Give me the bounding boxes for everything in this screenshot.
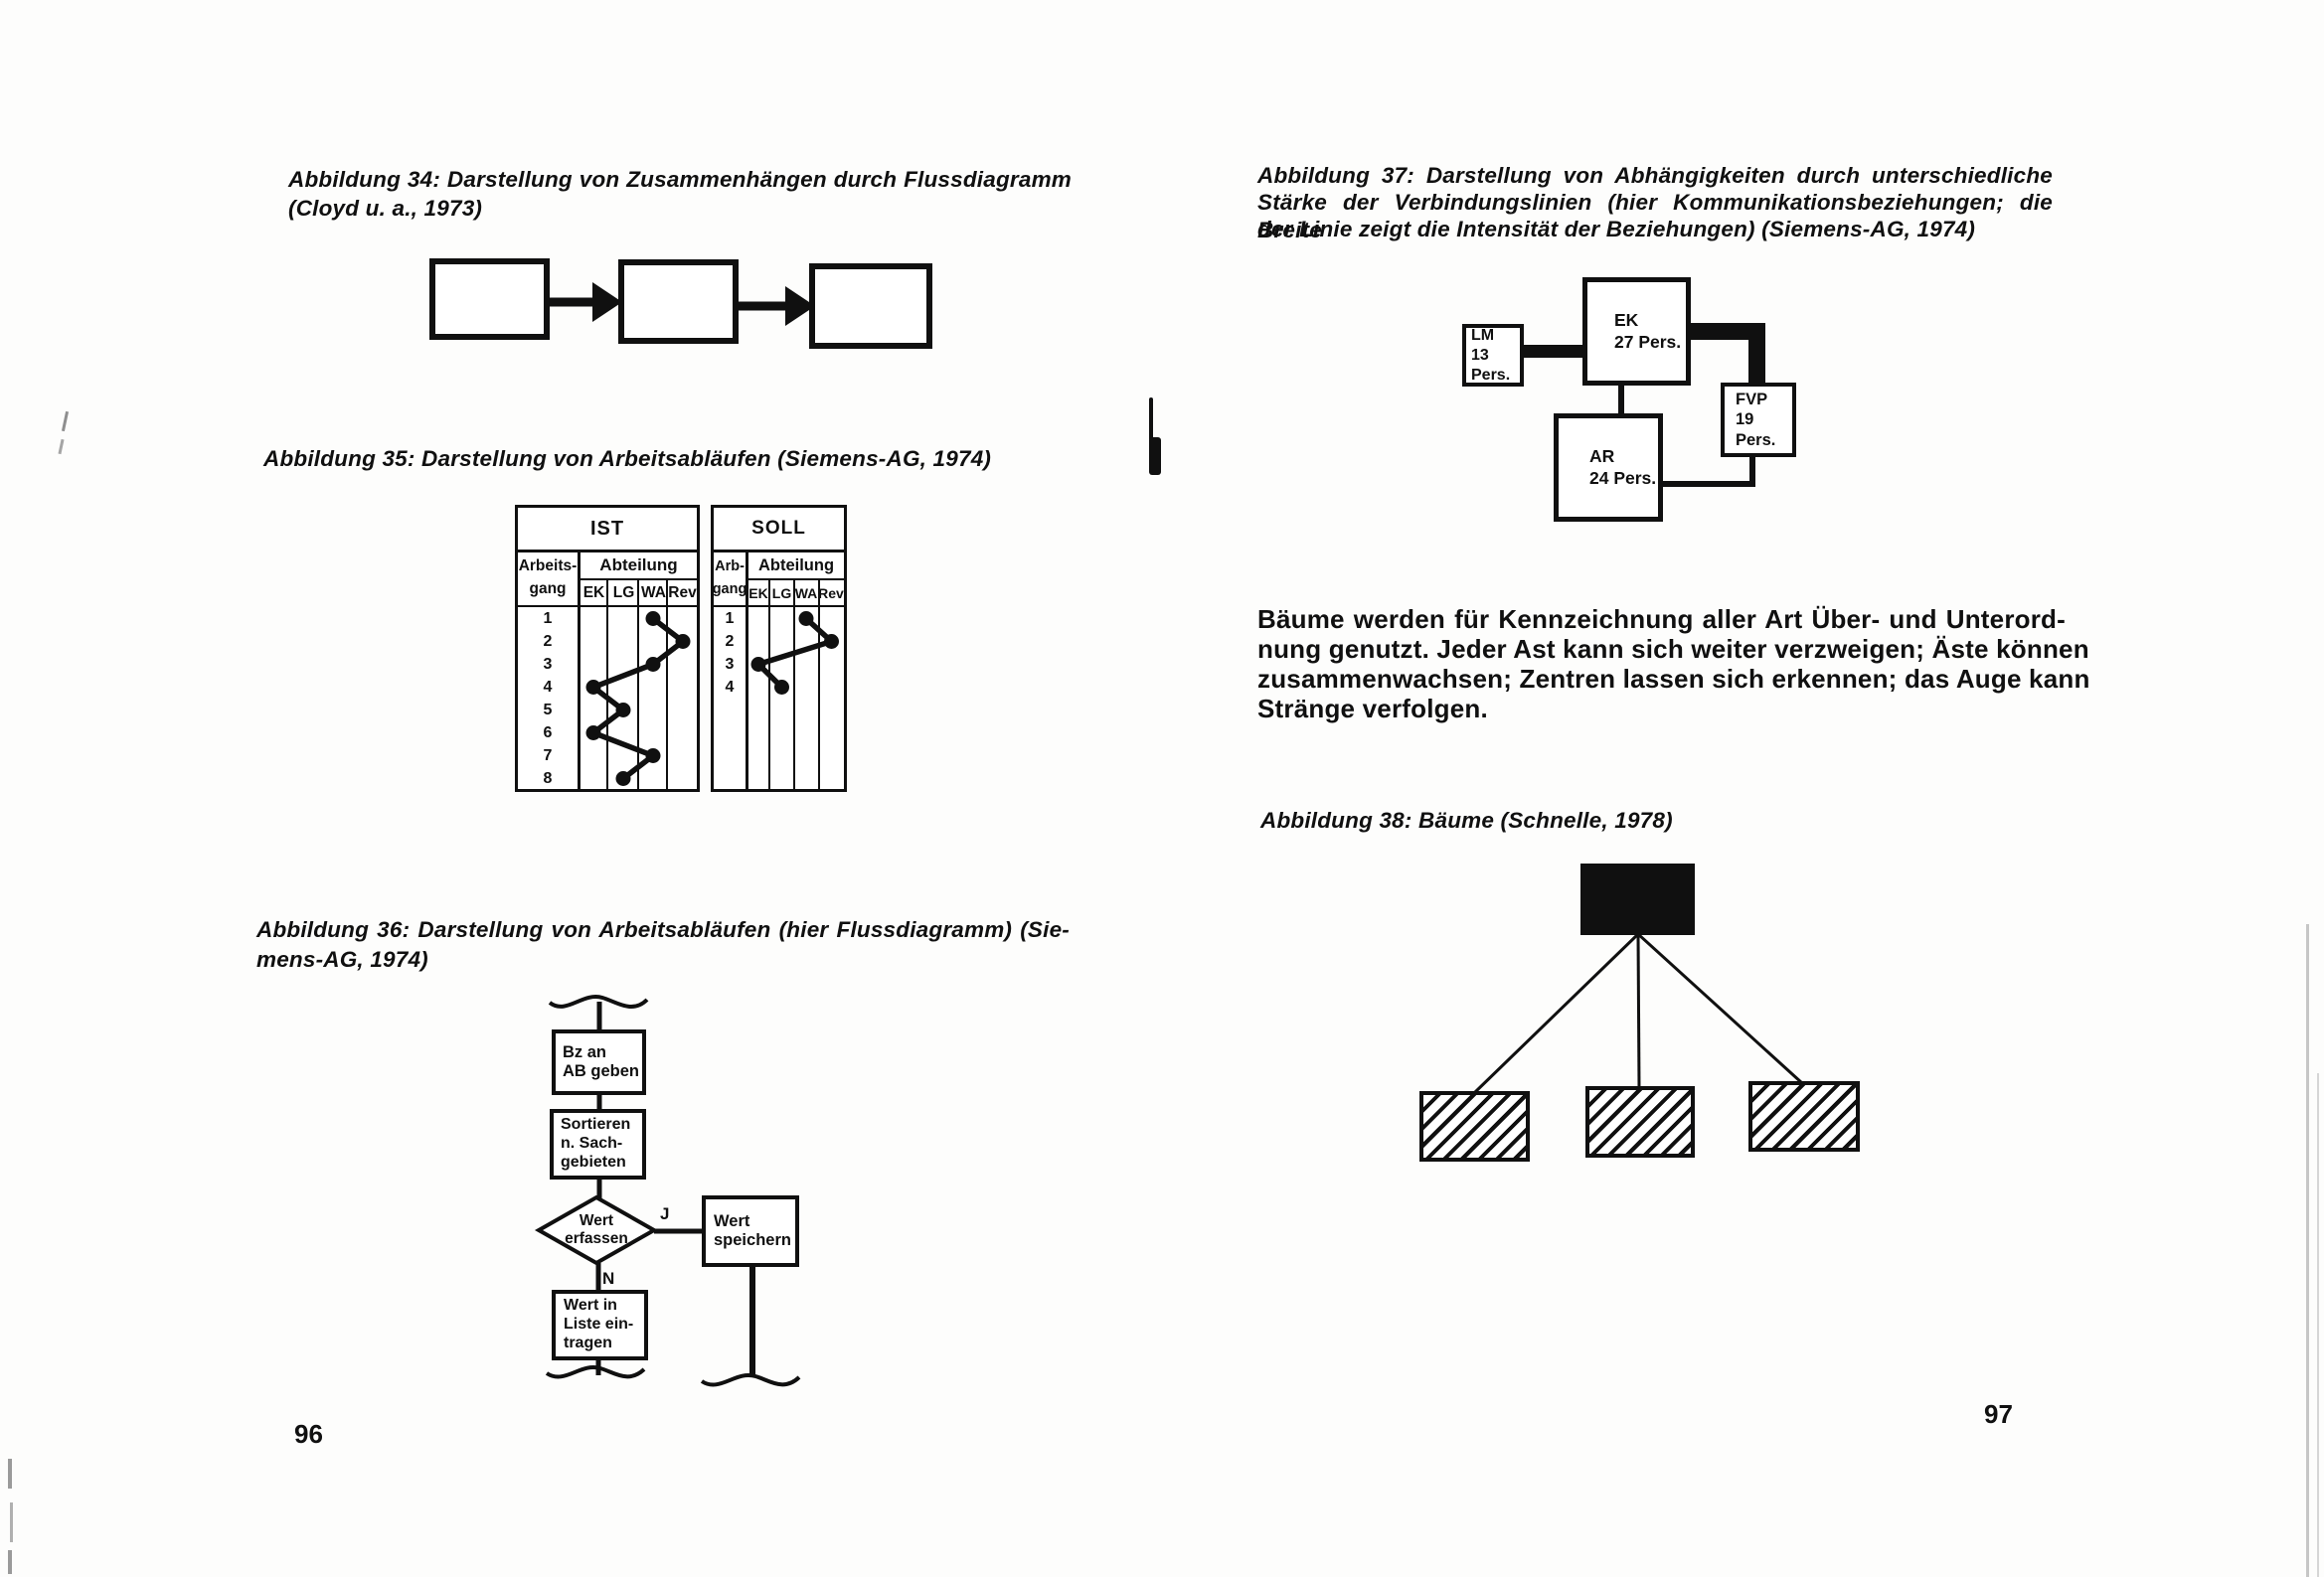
figure-38-caption: Abbildung 38: Bäume (Schnelle, 1978) <box>1260 807 1673 835</box>
ist-rule <box>666 580 668 789</box>
flowchart-decision-label: Wert erfassen <box>539 1202 654 1258</box>
body-text-line1: Bäume werden für Kennzeichnung aller Art… <box>1257 604 2066 634</box>
ist-col-ek: EK <box>581 580 607 605</box>
flowchart-step2-label: Sortieren n. Sach- gebieten <box>552 1111 644 1178</box>
ist-step-numbers: 1 2 3 4 5 6 7 8 <box>518 607 578 790</box>
soll-title: SOLL <box>714 508 844 550</box>
ist-step: 4 <box>518 676 578 699</box>
link-ek-ar-weak <box>1618 383 1624 415</box>
edge-scan-mark <box>8 1550 12 1574</box>
edge-scan-streak <box>2317 1073 2319 1577</box>
ist-rule <box>606 580 608 789</box>
binding-mark-thin <box>1149 397 1153 441</box>
link-ar-fvp-weak-h <box>1662 481 1754 487</box>
page-number-left: 96 <box>294 1419 323 1450</box>
link-lm-ek-strong <box>1523 345 1584 358</box>
flow-box-3 <box>812 266 929 346</box>
link-ek-fvp-strongest-v <box>1748 323 1765 387</box>
soll-step-numbers: 1 2 3 4 <box>714 607 746 790</box>
soll-col-lg: LG <box>770 580 793 605</box>
continuation-wave-bottom-left <box>547 1367 644 1377</box>
ist-col-lg: LG <box>609 580 638 605</box>
soll-rule <box>768 580 770 789</box>
ist-col-wa: WA <box>640 580 667 605</box>
tree-branch-center <box>1638 934 1639 1088</box>
tree-branch-right <box>1638 934 1802 1083</box>
figure-37-caption-line1: Abbildung 37: Darstellung von Abhängigke… <box>1257 162 2053 190</box>
org-node-ek: EK 27 Pers. <box>1582 277 1691 386</box>
org-node-fvp-label: FVP 19 Pers. <box>1725 390 1792 451</box>
tree-branch-left <box>1474 934 1638 1093</box>
edge-scan-mark <box>10 1502 13 1542</box>
body-text-line4: Stränge verfolgen. <box>1257 694 1488 723</box>
edge-scan-mark <box>8 1459 12 1489</box>
link-ar-fvp-weak-v <box>1749 454 1755 487</box>
soll-rowheader-2: gang <box>714 577 746 601</box>
flow-box-2 <box>621 262 736 341</box>
body-text-line2: nung genutzt. Jeder Ast kann sich weiter… <box>1257 634 2066 664</box>
soll-rule <box>818 580 820 789</box>
org-node-ar-label: AR 24 Pers. <box>1559 446 1656 490</box>
page-number-right: 97 <box>1984 1399 2013 1430</box>
ist-rule <box>637 580 639 789</box>
soll-step: 1 <box>714 607 746 630</box>
org-node-lm-label: LM 13 Pers. <box>1466 326 1520 386</box>
tree-branches <box>1392 929 1909 1098</box>
flow-box-1 <box>432 261 547 337</box>
flowchart-no-step-label: Wert in Liste ein- tragen <box>554 1292 646 1358</box>
figure-35-caption: Abbildung 35: Darstellung von Arbeitsabl… <box>263 445 991 473</box>
ist-step: 6 <box>518 721 578 744</box>
ist-step: 1 <box>518 607 578 630</box>
soll-col-rev: Rev <box>818 580 844 605</box>
figure-34-flow-diagram <box>427 253 939 353</box>
ist-step: 8 <box>518 767 578 790</box>
ist-group-header: Abteilung <box>581 552 697 578</box>
soll-rule <box>793 580 795 789</box>
figure-34-caption-line2: (Cloyd u. a., 1973) <box>288 195 482 223</box>
org-node-ek-label: EK 27 Pers. <box>1587 310 1681 354</box>
continuation-wave-bottom-right <box>702 1375 799 1385</box>
soll-step: 3 <box>714 653 746 676</box>
flow-arrow-1-head <box>592 282 622 322</box>
soll-col-wa: WA <box>794 580 818 605</box>
ist-rowheader-2: gang <box>518 577 578 601</box>
continuation-wave-top <box>550 997 647 1007</box>
ist-step: 3 <box>518 653 578 676</box>
figure-34-caption-line1: Abbildung 34: Darstellung von Zusammenhä… <box>288 166 1072 194</box>
figure-36-caption-line2: mens-AG, 1974) <box>256 946 428 974</box>
ist-col-rev: Rev <box>668 580 697 605</box>
binding-mark-thick <box>1149 437 1161 475</box>
tree-leaf-node-left <box>1419 1091 1530 1162</box>
ist-step: 2 <box>518 630 578 653</box>
soll-group-header: Abteilung <box>748 552 844 578</box>
tree-root-node <box>1580 864 1695 935</box>
flowchart-yes-step-label: Wert speichern <box>704 1197 797 1265</box>
org-node-ar: AR 24 Pers. <box>1554 413 1663 522</box>
book-spread: Abbildung 34: Darstellung von Zusammenhä… <box>0 0 2324 1577</box>
margin-scan-mark <box>58 439 64 454</box>
flowchart-step1-label: Bz an AB geben <box>554 1031 644 1093</box>
soll-rowheader-1: Arb- <box>714 554 746 578</box>
soll-step: 2 <box>714 630 746 653</box>
ist-title: IST <box>518 508 697 550</box>
org-node-lm: LM 13 Pers. <box>1462 324 1524 387</box>
margin-scan-mark <box>62 411 69 431</box>
soll-col-ek: EK <box>748 580 768 605</box>
edge-scan-streak <box>2306 924 2309 1577</box>
tree-leaf-node-right <box>1748 1081 1860 1152</box>
ist-rowheader-1: Arbeits- <box>518 554 578 578</box>
workflow-table-ist: IST Arbeits- gang Abteilung EK LG WA Rev… <box>515 505 700 792</box>
flow-arrow-2-head <box>785 286 815 326</box>
tree-leaf-node-center <box>1585 1086 1695 1158</box>
figure-36-caption-line1: Abbildung 36: Darstellung von Arbeitsabl… <box>256 916 1070 944</box>
flowchart-yes-label: J <box>660 1204 680 1224</box>
org-node-fvp: FVP 19 Pers. <box>1721 383 1796 457</box>
flowchart-no-label: N <box>602 1269 622 1289</box>
ist-step: 7 <box>518 744 578 767</box>
figure-37-caption-line3: der Linie zeigt die Intensität der Bezie… <box>1257 216 1975 243</box>
body-text-line3: zusammenwachsen; Zentren lassen sich erk… <box>1257 664 2066 694</box>
soll-step: 4 <box>714 676 746 699</box>
workflow-table-soll: SOLL Arb- gang Abteilung EK LG WA Rev 1 … <box>711 505 847 792</box>
ist-step: 5 <box>518 699 578 721</box>
